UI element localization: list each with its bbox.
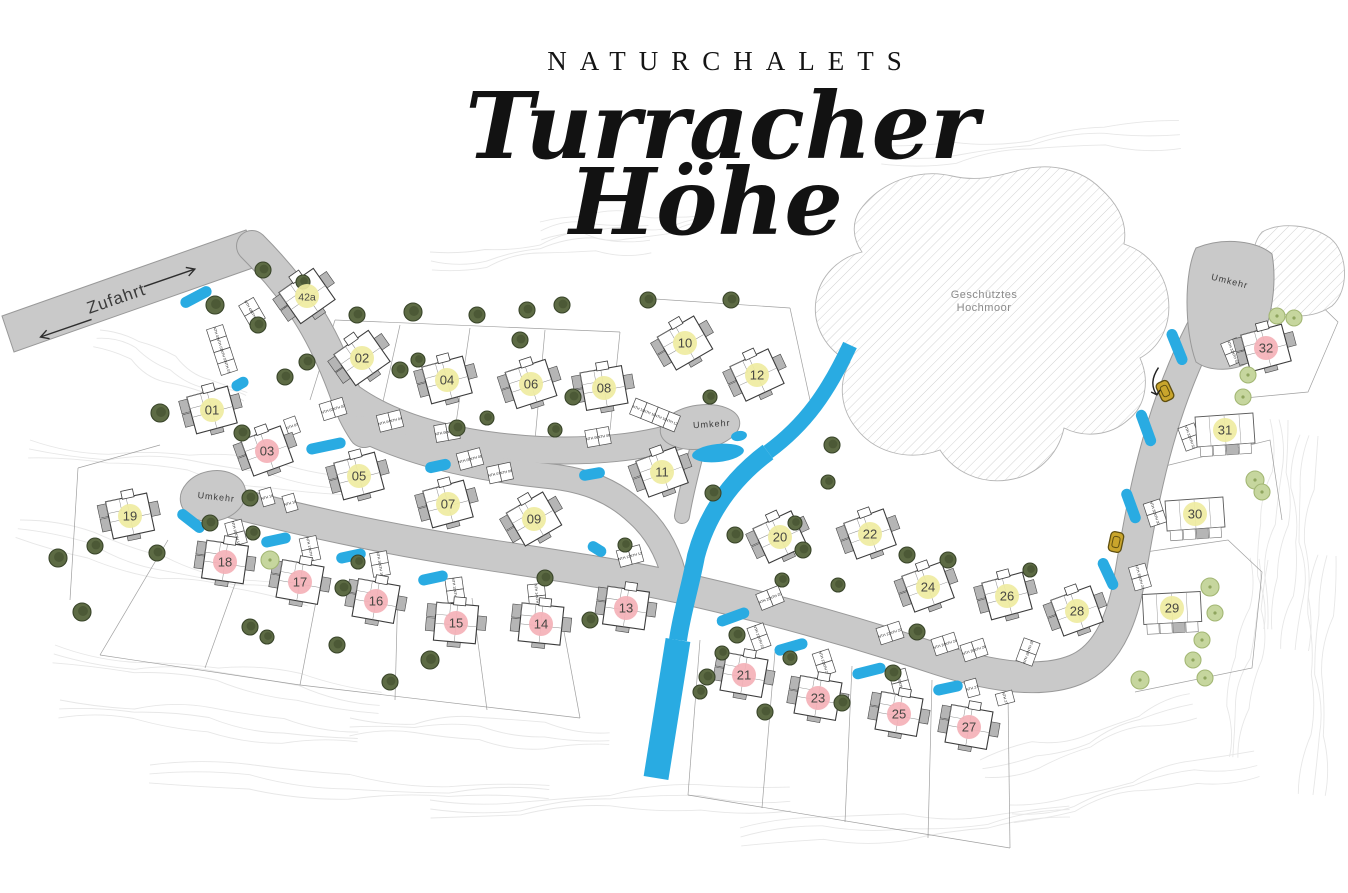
chalet-number-23: 23 xyxy=(811,691,825,706)
carport-row: NTH 01NTH 01NTH 03NTH 03 xyxy=(206,324,237,375)
chalet-marker-24[interactable]: 24 xyxy=(916,575,940,599)
chalet-marker-25[interactable]: 25 xyxy=(887,702,911,726)
conifer-tree-icon xyxy=(260,630,274,644)
chalet-marker-08[interactable]: 08 xyxy=(592,376,616,400)
conifer-tree-icon xyxy=(885,665,901,681)
chalet-number-28: 28 xyxy=(1070,604,1084,619)
chalet-number-14: 14 xyxy=(534,617,548,632)
chalet-number-20: 20 xyxy=(773,530,787,545)
chalet-marker-19[interactable]: 19 xyxy=(118,504,142,528)
conifer-tree-icon xyxy=(335,580,351,596)
chalet-marker-13[interactable]: 13 xyxy=(614,596,638,620)
conifer-tree-icon xyxy=(831,578,845,592)
chalet-number-04: 04 xyxy=(440,373,454,388)
conifer-tree-icon xyxy=(469,307,485,323)
deciduous-tree-icon xyxy=(1286,310,1302,326)
conifer-tree-icon xyxy=(404,303,422,321)
parking-strip xyxy=(305,436,346,455)
conifer-tree-icon xyxy=(255,262,271,278)
chalet-number-27: 27 xyxy=(962,720,976,735)
conifer-tree-icon xyxy=(715,646,729,660)
chalet-number-13: 13 xyxy=(619,601,633,616)
conifer-tree-icon xyxy=(693,685,707,699)
parking-strip xyxy=(260,532,292,549)
chalet-number-31: 31 xyxy=(1218,423,1232,438)
conifer-tree-icon xyxy=(234,425,250,441)
chalet-marker-02[interactable]: 02 xyxy=(350,346,374,370)
svg-text:Geschütztes: Geschütztes xyxy=(951,289,1018,301)
deciduous-tree-icon xyxy=(1185,652,1201,668)
chalet-number-02: 02 xyxy=(355,351,369,366)
chalet-number-19: 19 xyxy=(123,509,137,524)
carport-row: NTH 11NTH 10NTH 10NTH 12 xyxy=(630,398,681,432)
chalet-marker-26[interactable]: 26 xyxy=(995,584,1019,608)
chalet-number-08: 08 xyxy=(597,381,611,396)
conifer-tree-icon xyxy=(49,549,67,567)
conifer-tree-icon xyxy=(351,555,365,569)
chalet-marker-20[interactable]: 20 xyxy=(768,525,792,549)
chalet-marker-21[interactable]: 21 xyxy=(732,663,756,687)
chalet-marker-14[interactable]: 14 xyxy=(529,612,553,636)
chalet-number-26: 26 xyxy=(1000,589,1014,604)
carport-row: NTH 21NTH 21 xyxy=(747,623,771,652)
parking-strip xyxy=(851,662,887,681)
deciduous-tree-icon xyxy=(1201,578,1219,596)
conifer-tree-icon xyxy=(788,516,802,530)
parking-strip xyxy=(932,680,964,697)
conifer-tree-icon xyxy=(480,411,494,425)
conifer-tree-icon xyxy=(618,538,632,552)
conifer-tree-icon xyxy=(795,542,811,558)
chalet-number-25: 25 xyxy=(892,707,906,722)
conifer-tree-icon xyxy=(246,526,260,540)
conifer-tree-icon xyxy=(909,624,925,640)
deciduous-tree-icon xyxy=(1207,605,1223,621)
chalet-marker-01[interactable]: 01 xyxy=(200,398,224,422)
deciduous-tree-icon xyxy=(1254,484,1270,500)
conifer-tree-icon xyxy=(202,515,218,531)
parcel-boundaries xyxy=(70,290,1338,848)
conifer-tree-icon xyxy=(775,573,789,587)
chalet-marker-22[interactable]: 22 xyxy=(858,522,882,546)
chalet-marker-30[interactable]: 30 xyxy=(1183,502,1207,526)
chalet-marker-03[interactable]: 03 xyxy=(255,439,279,463)
chalet-marker-32[interactable]: 32 xyxy=(1254,336,1278,360)
chalet-number-09: 09 xyxy=(527,512,541,527)
conifer-tree-icon xyxy=(699,669,715,685)
chalet-number-06: 06 xyxy=(524,377,538,392)
conifer-tree-icon xyxy=(705,485,721,501)
chalet-marker-12[interactable]: 12 xyxy=(745,363,769,387)
conifer-tree-icon xyxy=(277,369,293,385)
conifer-tree-icon xyxy=(421,651,439,669)
chalet-marker-31[interactable]: 31 xyxy=(1213,418,1237,442)
conifer-tree-icon xyxy=(1023,563,1037,577)
site-plan-page: NTH 01NTH 01NTH 03NTH 03NTH 42aNTH 42aNT… xyxy=(0,0,1348,893)
chalet-marker-15[interactable]: 15 xyxy=(444,611,468,635)
deciduous-tree-icon xyxy=(1197,670,1213,686)
chalet-marker-42a[interactable]: 42a xyxy=(295,284,319,308)
chalet-number-29: 29 xyxy=(1165,601,1179,616)
chalet-marker-11[interactable]: 11 xyxy=(650,460,674,484)
conifer-tree-icon xyxy=(824,437,840,453)
chalet-marker-07[interactable]: 07 xyxy=(436,492,460,516)
conifer-tree-icon xyxy=(537,570,553,586)
conifer-tree-icon xyxy=(703,390,717,404)
chalet-number-24: 24 xyxy=(921,580,935,595)
conifer-tree-icon xyxy=(87,538,103,554)
chalet-number-03: 03 xyxy=(260,444,274,459)
chalet-marker-16[interactable]: 16 xyxy=(364,589,388,613)
chalet-number-42a: 42a xyxy=(298,292,316,304)
conifer-tree-icon xyxy=(834,695,850,711)
conifer-tree-icon xyxy=(729,627,745,643)
chalet-number-10: 10 xyxy=(678,336,692,351)
conifer-tree-icon xyxy=(382,674,398,690)
chalet-number-22: 22 xyxy=(863,527,877,542)
conifer-tree-icon xyxy=(349,307,365,323)
chalet-number-17: 17 xyxy=(293,575,307,590)
hochmoor-label: GeschütztesHochmoor xyxy=(951,289,1018,314)
conifer-tree-icon xyxy=(640,292,656,308)
chalet-number-07: 07 xyxy=(441,497,455,512)
chalet-number-05: 05 xyxy=(352,469,366,484)
conifer-tree-icon xyxy=(582,612,598,628)
site-plan-svg: NTH 01NTH 01NTH 03NTH 03NTH 42aNTH 42aNT… xyxy=(0,0,1348,893)
conifer-tree-icon xyxy=(411,353,425,367)
conifer-tree-icon xyxy=(242,490,258,506)
svg-text:Hochmoor: Hochmoor xyxy=(957,302,1012,314)
carport-row: NTH 16NTH 16 xyxy=(370,551,391,578)
conifer-tree-icon xyxy=(899,547,915,563)
chalet-marker-17[interactable]: 17 xyxy=(288,570,312,594)
deciduous-tree-icon xyxy=(261,551,279,569)
chalet-number-30: 30 xyxy=(1188,507,1202,522)
conifer-tree-icon xyxy=(242,619,258,635)
chalet-marker-10[interactable]: 10 xyxy=(673,331,697,355)
chalet-number-21: 21 xyxy=(737,668,751,683)
conifer-tree-icon xyxy=(250,317,266,333)
carport-row: NTH 27 xyxy=(995,690,1015,706)
chalet-number-18: 18 xyxy=(218,555,232,570)
chalet-number-12: 12 xyxy=(750,368,764,383)
deciduous-tree-icon xyxy=(1240,367,1256,383)
chalet-marker-18[interactable]: 18 xyxy=(213,550,237,574)
conifer-tree-icon xyxy=(783,651,797,665)
chalet-marker-27[interactable]: 27 xyxy=(957,715,981,739)
conifer-tree-icon xyxy=(206,296,224,314)
parking-strip xyxy=(417,570,449,587)
conifer-tree-icon xyxy=(512,332,528,348)
deciduous-tree-icon xyxy=(1235,389,1251,405)
conifer-tree-icon xyxy=(548,423,562,437)
chalet-number-32: 32 xyxy=(1259,341,1273,356)
conifer-tree-icon xyxy=(565,389,581,405)
chalet-number-11: 11 xyxy=(655,465,669,480)
chalet-marker-04[interactable]: 04 xyxy=(435,368,459,392)
deciduous-tree-icon xyxy=(1131,671,1149,689)
deciduous-tree-icon xyxy=(1269,308,1285,324)
chalet-marker-28[interactable]: 28 xyxy=(1065,599,1089,623)
conifer-tree-icon xyxy=(299,354,315,370)
conifer-tree-icon xyxy=(449,420,465,436)
chalet-marker-23[interactable]: 23 xyxy=(806,686,830,710)
conifer-tree-icon xyxy=(727,527,743,543)
chalet-marker-06[interactable]: 06 xyxy=(519,372,543,396)
conifer-tree-icon xyxy=(149,545,165,561)
chalet-marker-05[interactable]: 05 xyxy=(347,464,371,488)
conifer-tree-icon xyxy=(519,302,535,318)
chalet-marker-09[interactable]: 09 xyxy=(522,507,546,531)
deciduous-tree-icon xyxy=(1194,632,1210,648)
chalet-number-15: 15 xyxy=(449,616,463,631)
conifer-tree-icon xyxy=(392,362,408,378)
conifer-tree-icon xyxy=(554,297,570,313)
conifer-tree-icon xyxy=(151,404,169,422)
conifer-tree-icon xyxy=(757,704,773,720)
conifer-tree-icon xyxy=(329,637,345,653)
conifer-tree-icon xyxy=(73,603,91,621)
chalet-number-01: 01 xyxy=(205,403,219,418)
conifer-tree-icon xyxy=(723,292,739,308)
conifer-tree-icon xyxy=(940,552,956,568)
chalet-marker-29[interactable]: 29 xyxy=(1160,596,1184,620)
chalet-number-16: 16 xyxy=(369,594,383,609)
conifer-tree-icon xyxy=(821,475,835,489)
